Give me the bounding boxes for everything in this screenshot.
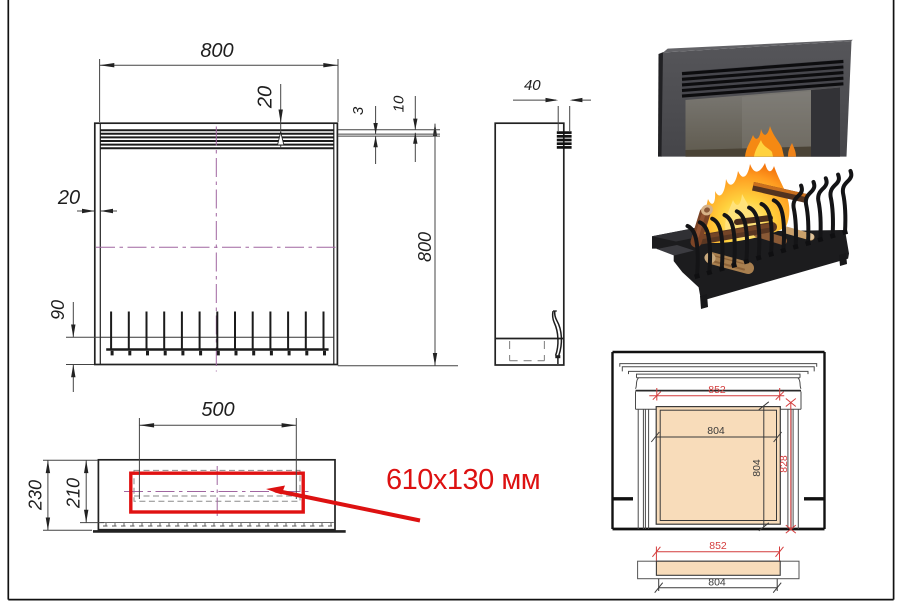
- svg-text:804: 804: [708, 577, 726, 589]
- svg-text:20: 20: [255, 86, 277, 109]
- svg-text:500: 500: [201, 399, 234, 421]
- svg-text:804: 804: [751, 459, 763, 477]
- svg-text:210: 210: [64, 478, 84, 509]
- svg-text:828: 828: [778, 455, 790, 473]
- svg-text:20: 20: [57, 187, 80, 209]
- svg-text:852: 852: [708, 384, 726, 396]
- svg-text:90: 90: [48, 300, 68, 320]
- svg-text:3: 3: [350, 106, 367, 115]
- svg-text:800: 800: [415, 232, 435, 262]
- svg-text:804: 804: [707, 425, 725, 437]
- svg-text:610x130 мм: 610x130 мм: [386, 464, 540, 496]
- svg-text:40: 40: [524, 77, 541, 94]
- svg-text:10: 10: [391, 95, 408, 112]
- svg-text:800: 800: [200, 40, 233, 62]
- svg-text:230: 230: [26, 480, 46, 511]
- svg-text:852: 852: [709, 540, 727, 552]
